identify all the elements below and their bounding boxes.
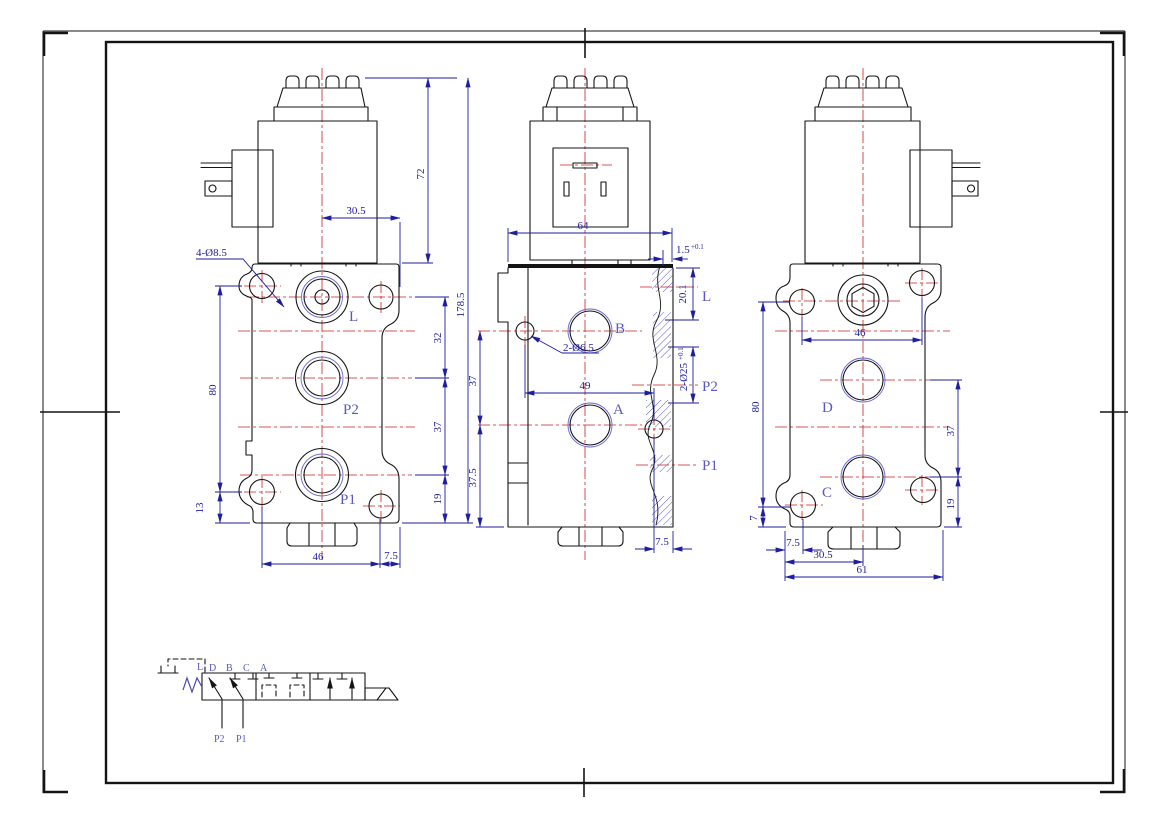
label-port-p2: P2 bbox=[702, 379, 718, 395]
dim-span: 80 bbox=[750, 401, 762, 413]
hydraulic-schematic: L D B C A P2 P1 bbox=[158, 659, 398, 745]
label-port-p1: P1 bbox=[702, 458, 718, 474]
dim-d-c: 37 bbox=[945, 425, 957, 437]
knurled-knob bbox=[274, 76, 368, 121]
view-left-side: 72 178.5 32 37 19 30.5 80 13 46 7.5 4-Ø8… bbox=[194, 68, 473, 568]
dim-l-p2: 32 bbox=[432, 333, 444, 344]
label-p1: P1 bbox=[236, 734, 247, 745]
knurled-knob bbox=[543, 76, 637, 121]
label-pilot-l: L bbox=[197, 662, 203, 673]
label-port-p1: P1 bbox=[340, 492, 356, 508]
centering-ticks bbox=[40, 28, 1128, 797]
schematic-labels: L D B C A P2 P1 bbox=[197, 662, 268, 745]
electrical-connector bbox=[201, 150, 273, 227]
inner-frame bbox=[106, 42, 1113, 783]
dim-total-height: 178.5 bbox=[455, 292, 467, 317]
label-port-l: L bbox=[349, 309, 358, 325]
dim-width: 64 bbox=[578, 220, 590, 232]
label-b: B bbox=[226, 663, 233, 674]
dimensions: 46 80 7 37 19 7.5 30.5 61 bbox=[748, 298, 962, 581]
hex-nut bbox=[558, 527, 623, 546]
label-port-c: C bbox=[822, 485, 832, 501]
label-port-b: B bbox=[615, 321, 625, 337]
valve-body bbox=[776, 264, 941, 549]
view-front: 64 1.5 +0.1 20.1 2-Ø25 +0.1 49 37 37.5 7… bbox=[467, 68, 718, 560]
dim-depth: 20.1 bbox=[677, 284, 689, 303]
section-hatch bbox=[652, 496, 672, 525]
corner-mark-bottom-left bbox=[43, 770, 68, 793]
dim-bore: 2-Ø25 bbox=[678, 362, 690, 391]
label-a: A bbox=[260, 663, 268, 674]
dim-a-base: 37.5 bbox=[467, 468, 479, 488]
label-c: C bbox=[243, 663, 250, 674]
dim-c-base: 19 bbox=[945, 498, 957, 510]
connector-pin-slot bbox=[601, 182, 606, 196]
solenoid-coil bbox=[805, 121, 920, 263]
label-d: D bbox=[209, 663, 216, 674]
label-port-p2: P2 bbox=[343, 402, 359, 418]
dim-base: 13 bbox=[194, 502, 206, 514]
valve-body-section bbox=[498, 264, 673, 546]
dim-p2-p1: 37 bbox=[432, 421, 444, 433]
corner-mark-top-left bbox=[43, 32, 68, 56]
drawing-sheet: 72 178.5 32 37 19 30.5 80 13 46 7.5 4-Ø8… bbox=[0, 0, 1169, 826]
position-crossed bbox=[209, 673, 258, 699]
label-port-l: L bbox=[702, 289, 711, 305]
dim-coil-height: 72 bbox=[415, 169, 427, 180]
mounting-plate bbox=[508, 264, 673, 268]
dim-step-tol: +0.1 bbox=[691, 243, 704, 251]
dimensions: 72 178.5 32 37 19 30.5 80 13 46 7.5 4-Ø8… bbox=[194, 78, 473, 568]
view-right-side: 46 80 7 37 19 7.5 30.5 61 D C bbox=[748, 68, 980, 581]
solenoid-coil bbox=[258, 121, 377, 263]
label-port-a: A bbox=[613, 402, 624, 418]
valve-body bbox=[239, 264, 399, 546]
connector-pin-slot bbox=[564, 182, 569, 196]
valve-positions-box bbox=[202, 673, 365, 700]
dim-span: 80 bbox=[207, 384, 219, 396]
dim-p1-base: 19 bbox=[432, 493, 444, 505]
position-closed bbox=[262, 673, 304, 697]
hex-nut bbox=[828, 527, 900, 549]
dim-width: 61 bbox=[857, 564, 868, 576]
label-p2: P2 bbox=[214, 734, 225, 745]
dim-step: 1.5 bbox=[676, 244, 690, 256]
dim-bolt-holes: 4-Ø8.5 bbox=[196, 247, 227, 259]
section-hatch bbox=[646, 400, 671, 427]
position-straight bbox=[313, 673, 352, 699]
dim-top-span: 46 bbox=[855, 327, 867, 339]
section-hatch bbox=[650, 455, 672, 472]
spring-symbol bbox=[183, 678, 202, 692]
dim-offset: 30.5 bbox=[346, 205, 366, 217]
dim-width: 46 bbox=[313, 551, 325, 563]
solenoid-actuator-symbol bbox=[365, 688, 398, 700]
dim-bore-tol: +0.1 bbox=[677, 347, 685, 360]
dim-center: 30.5 bbox=[813, 549, 833, 561]
dim-edge: 7.5 bbox=[655, 536, 669, 548]
solenoid-front bbox=[530, 121, 650, 265]
dim-edge: 7.5 bbox=[786, 537, 800, 549]
dim-edge: 7.5 bbox=[384, 550, 398, 562]
section-hatch bbox=[652, 268, 673, 292]
sheet-border bbox=[40, 28, 1128, 797]
label-port-d: D bbox=[822, 400, 833, 416]
dim-b-a: 37 bbox=[467, 375, 479, 387]
port-lines bbox=[222, 700, 243, 728]
port-labels: D C bbox=[822, 400, 833, 501]
dim-base: 7 bbox=[748, 515, 760, 521]
cad-drawing: 72 178.5 32 37 19 30.5 80 13 46 7.5 4-Ø8… bbox=[0, 0, 1169, 826]
dim-pilot-holes: 2-Ø6.5 bbox=[563, 342, 594, 354]
dim-hole-span: 49 bbox=[580, 380, 592, 392]
